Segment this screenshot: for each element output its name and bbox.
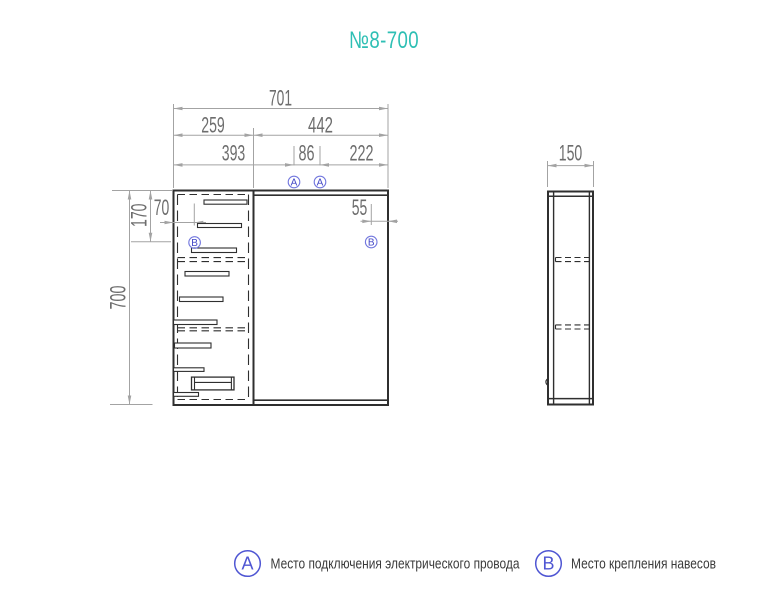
svg-text:B: B [368,238,375,249]
svg-text:86: 86 [299,141,315,166]
svg-text:Место подключения электрическо: Место подключения электрического провода [271,556,521,573]
svg-text:A: A [241,554,253,574]
svg-text:150: 150 [559,141,583,166]
svg-text:170: 170 [127,204,152,228]
svg-text:B: B [542,554,554,574]
svg-text:B: B [191,238,198,249]
svg-text:55: 55 [352,195,368,220]
svg-text:701: 701 [269,86,292,111]
svg-text:259: 259 [201,113,225,138]
svg-text:70: 70 [154,195,170,220]
svg-text:A: A [291,178,298,189]
svg-text:442: 442 [308,113,333,138]
svg-text:393: 393 [222,141,246,166]
svg-text:A: A [317,178,324,189]
svg-text:Место крепления навесов: Место крепления навесов [571,556,716,573]
svg-text:222: 222 [350,141,374,166]
svg-text:№8-700: №8-700 [349,27,419,54]
svg-text:700: 700 [106,286,131,310]
